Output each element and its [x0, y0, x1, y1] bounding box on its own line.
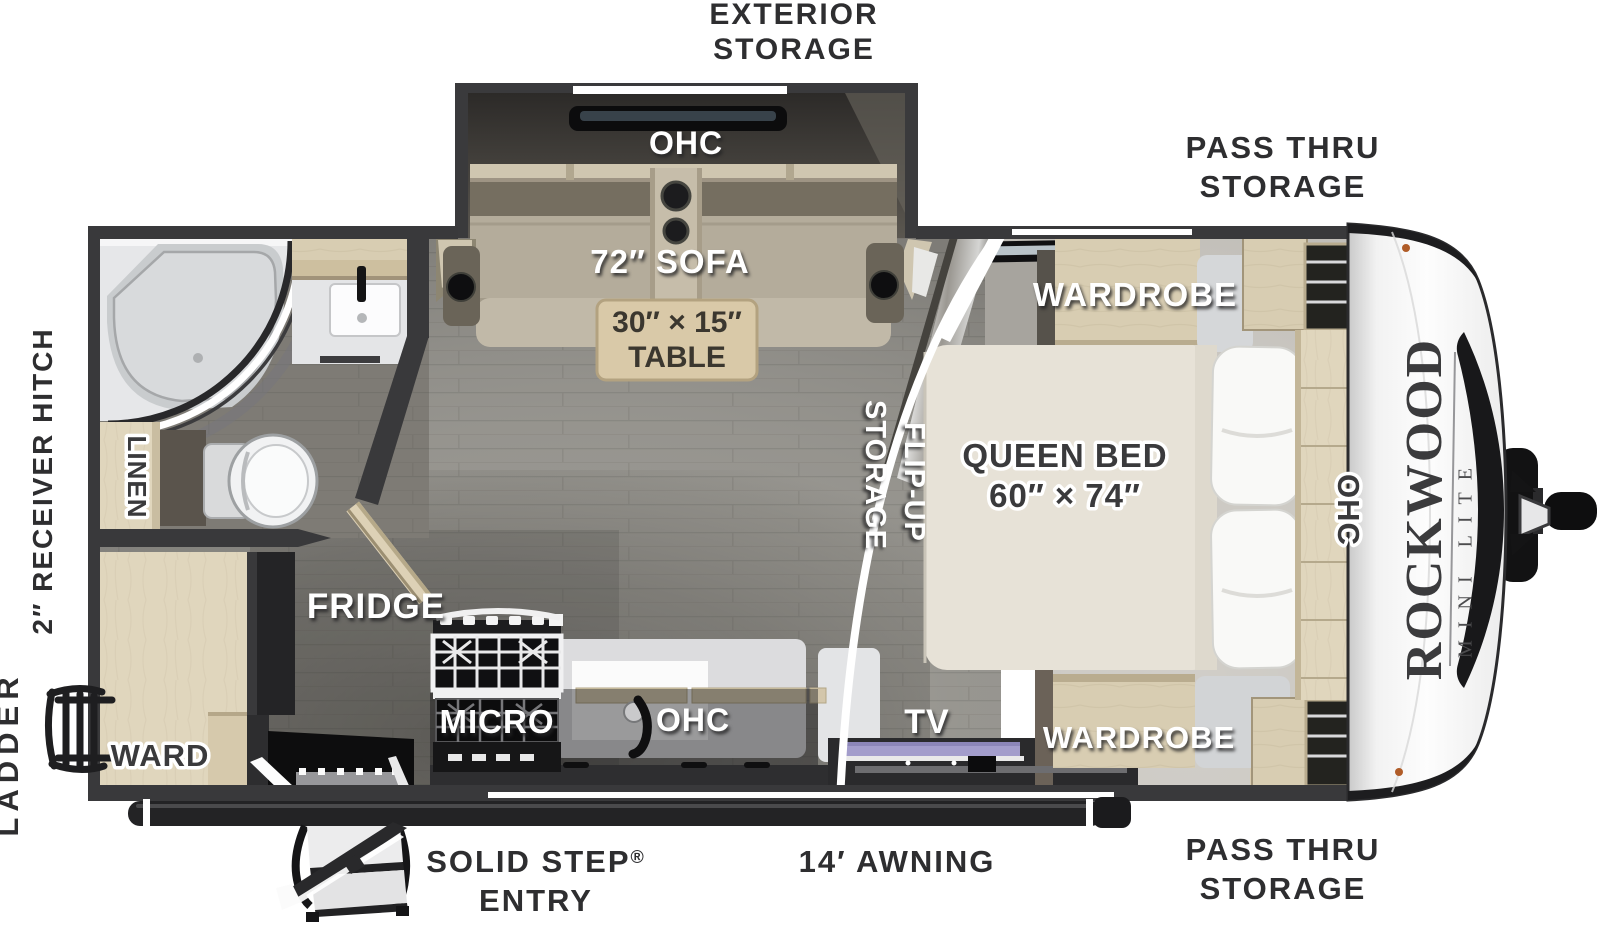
svg-text:QUEEN BED: QUEEN BED — [962, 437, 1167, 474]
svg-text:WARDROBE: WARDROBE — [1043, 720, 1235, 755]
svg-text:TABLE: TABLE — [628, 341, 726, 374]
svg-text:ROCKWOOD: ROCKWOOD — [1396, 338, 1453, 680]
svg-text:LADDER: LADDER — [0, 671, 25, 836]
svg-text:STORAGE: STORAGE — [1200, 169, 1367, 204]
svg-text:MICRO: MICRO — [440, 703, 555, 740]
svg-text:PASS THRU: PASS THRU — [1186, 130, 1381, 165]
svg-text:STORAGE: STORAGE — [859, 400, 891, 550]
svg-text:STORAGE: STORAGE — [1200, 871, 1367, 906]
svg-text:TV: TV — [904, 703, 949, 741]
svg-text:14′ AWNING: 14′ AWNING — [799, 844, 996, 879]
svg-text:72″ SOFA: 72″ SOFA — [590, 243, 750, 280]
svg-text:SOLID STEP®: SOLID STEP® — [426, 844, 646, 879]
svg-text:MINI LITE: MINI LITE — [1455, 456, 1477, 658]
svg-text:OHC: OHC — [1331, 474, 1366, 546]
svg-text:OHC: OHC — [656, 702, 730, 738]
svg-text:30″ × 15″: 30″ × 15″ — [612, 306, 742, 339]
svg-text:WARD: WARD — [111, 738, 210, 773]
svg-text:OHC: OHC — [649, 125, 723, 161]
svg-text:FRIDGE: FRIDGE — [307, 587, 445, 626]
svg-text:LINEN: LINEN — [122, 436, 152, 519]
svg-text:EXTERIOR: EXTERIOR — [709, 0, 878, 31]
svg-text:WARDROBE: WARDROBE — [1033, 276, 1237, 313]
svg-text:PASS THRU: PASS THRU — [1186, 832, 1381, 867]
svg-text:60″ × 74″: 60″ × 74″ — [989, 477, 1141, 514]
svg-text:ENTRY: ENTRY — [479, 883, 593, 918]
svg-text:STORAGE: STORAGE — [713, 33, 875, 66]
svg-text:2″ RECEIVER HITCH: 2″ RECEIVER HITCH — [27, 327, 58, 634]
svg-text:FLIP-UP: FLIP-UP — [898, 422, 930, 542]
